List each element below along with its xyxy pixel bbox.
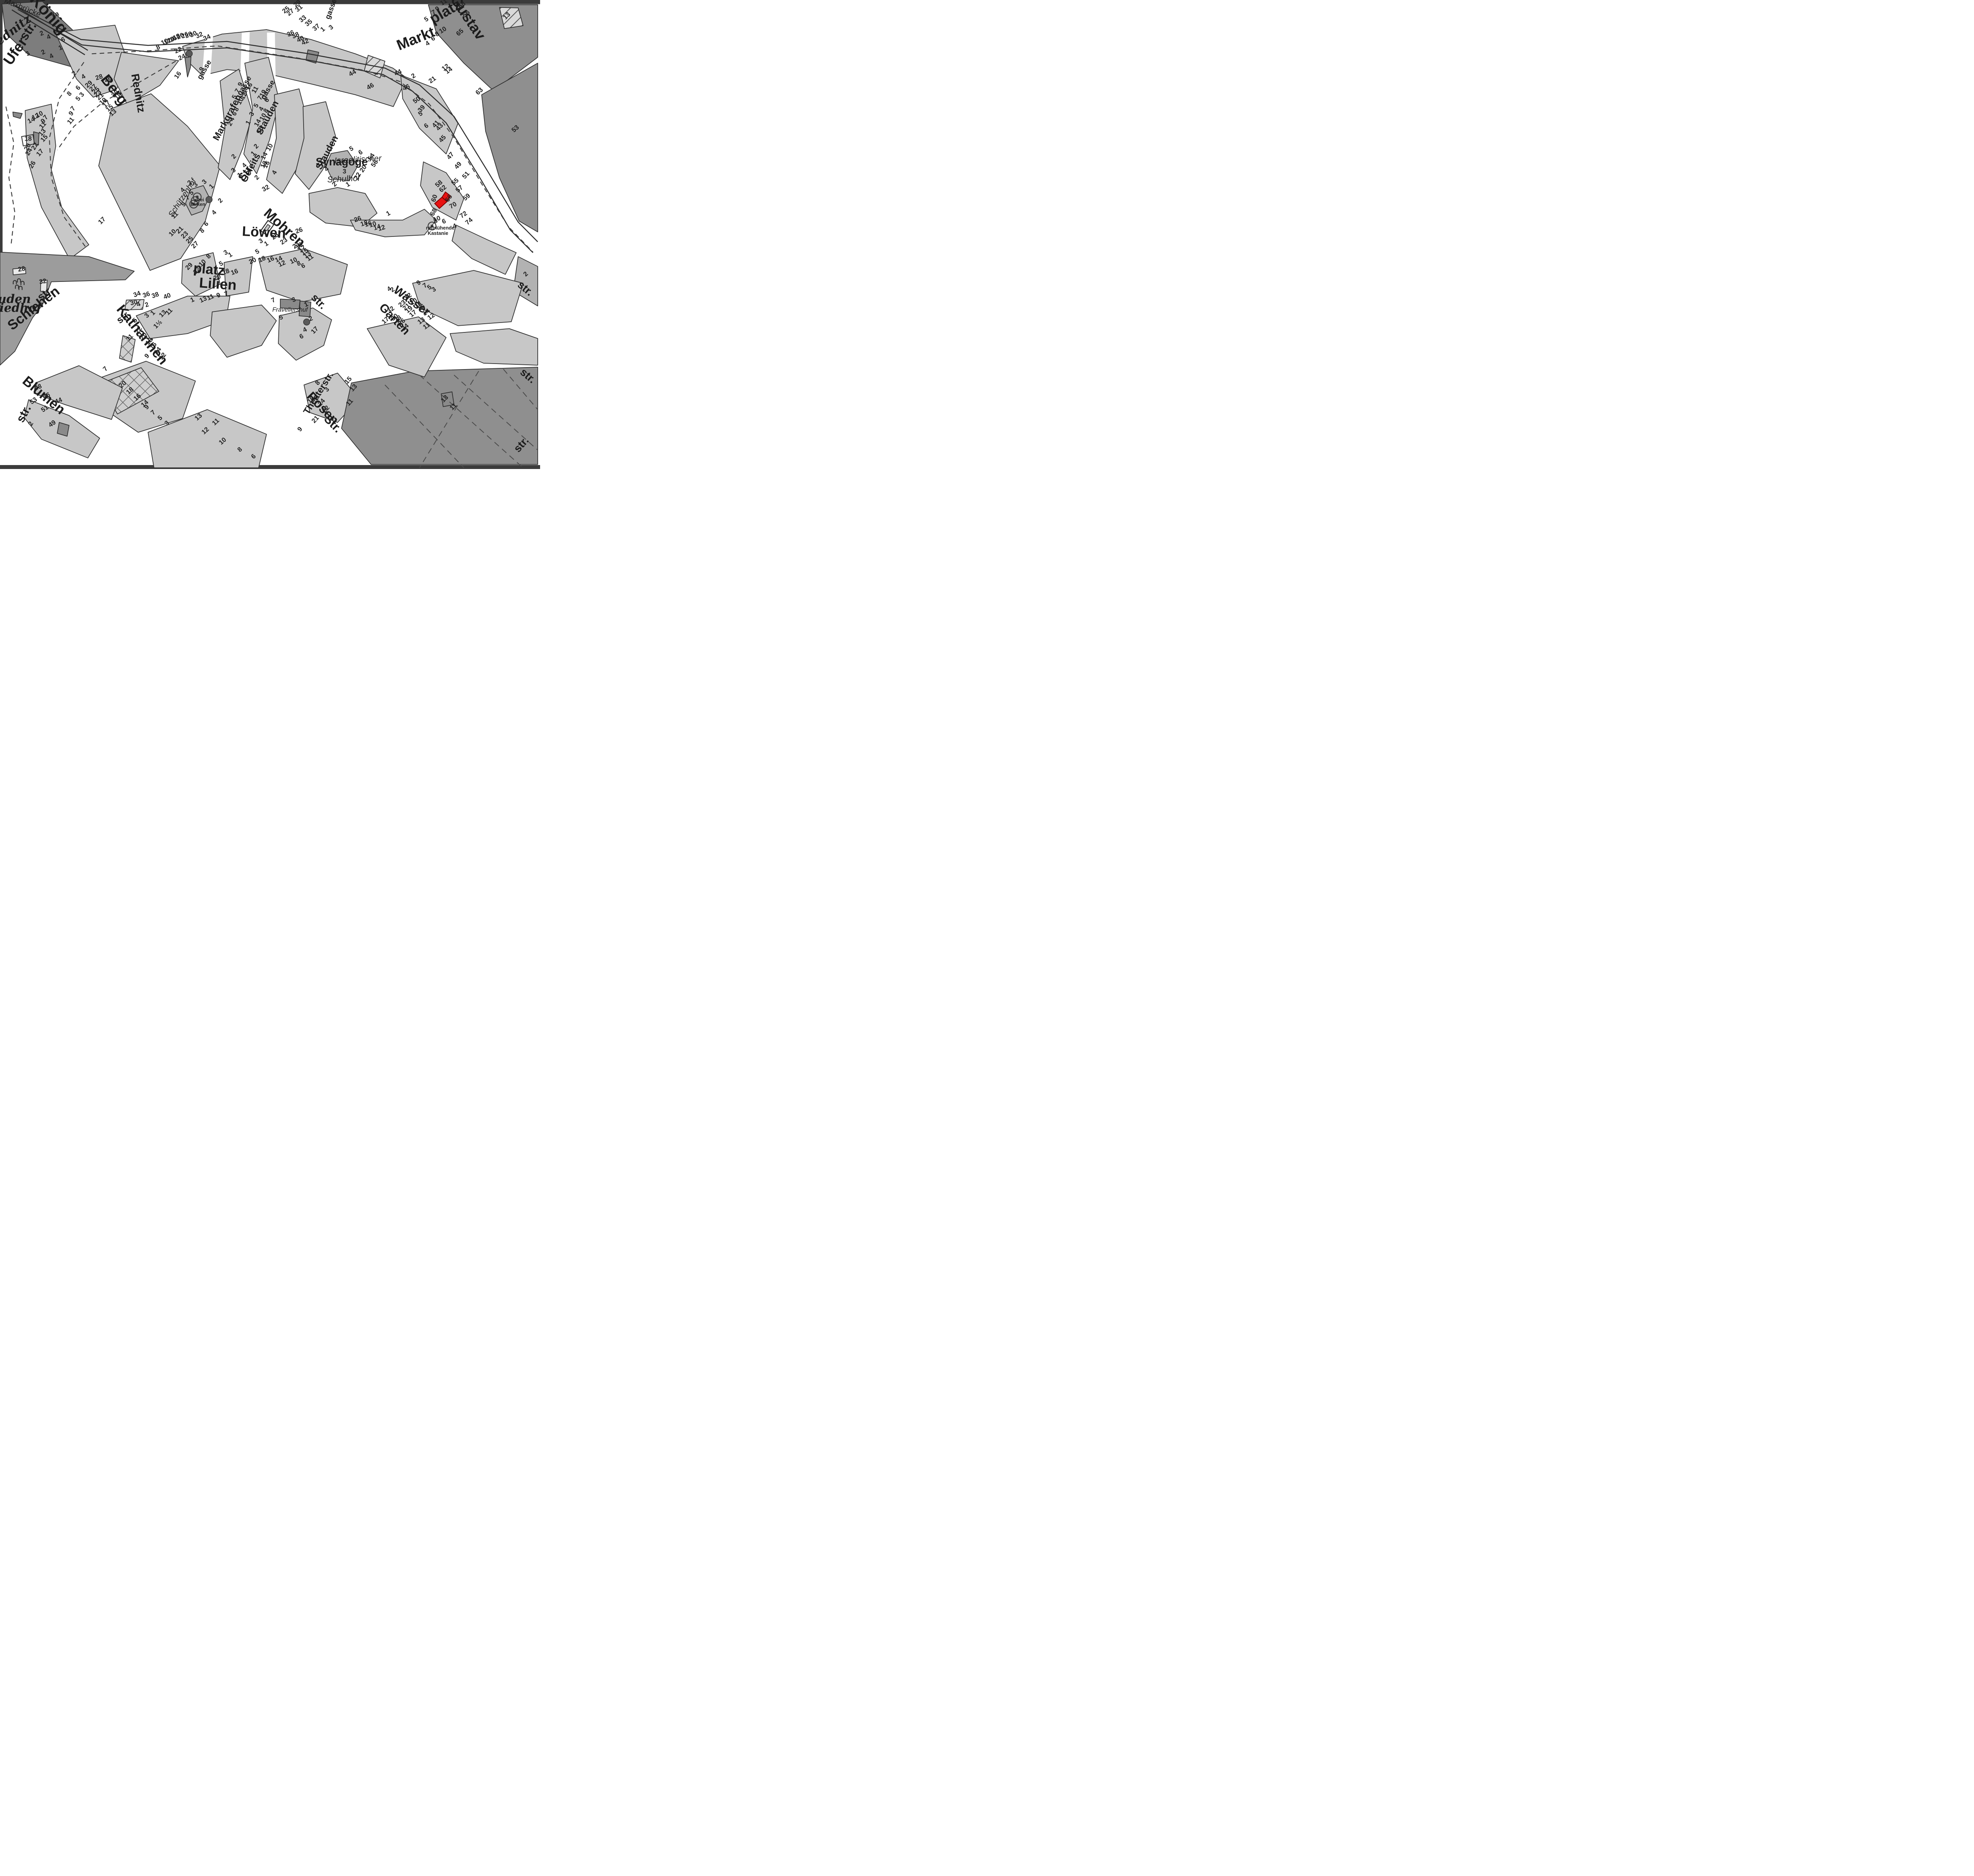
tree-icon xyxy=(304,319,310,325)
city-map: MaxbrückeRednitzKönigstr.UferRednitzBerg… xyxy=(0,0,540,469)
house-number: 2 xyxy=(144,301,150,309)
house-number: 49 xyxy=(453,160,463,171)
street-label: Fraveliershuf xyxy=(272,307,308,313)
house-number: 74 xyxy=(464,216,474,226)
house-number: 2 xyxy=(217,197,224,204)
map-page: MaxbrückeRednitzKönigstr.UferRednitzBerg… xyxy=(0,0,540,469)
scan-border xyxy=(0,465,540,469)
house-number: 9 xyxy=(296,426,304,433)
house-number: 7 xyxy=(101,365,109,373)
house-number: 7 xyxy=(270,296,276,304)
house-number: 1 xyxy=(263,240,270,248)
house-number: 51 xyxy=(461,170,471,180)
house-number: 6 xyxy=(74,84,82,92)
city-block xyxy=(99,94,220,271)
house-number: 16 xyxy=(173,70,183,80)
house-number: 21 xyxy=(427,75,437,85)
tree-icon xyxy=(186,51,192,57)
city-block xyxy=(185,57,191,77)
street-label: Löwen xyxy=(242,223,286,241)
house-number: 1 xyxy=(385,210,392,218)
city-block xyxy=(210,305,277,358)
house-number: 8 xyxy=(66,90,73,98)
house-number: 28 xyxy=(17,265,26,273)
house-number: 17 xyxy=(97,216,107,226)
city-block xyxy=(452,225,516,274)
city-block xyxy=(13,112,23,118)
house-number: 72 xyxy=(458,210,468,219)
house-number: 5 xyxy=(254,248,261,256)
house-number: 2 xyxy=(253,174,261,181)
city-block xyxy=(482,63,538,232)
city-block xyxy=(450,329,538,366)
house-number: 38 xyxy=(151,291,160,300)
street-label: friedhof xyxy=(0,301,43,315)
house-number: 40 xyxy=(163,292,172,301)
boundary-chain-line xyxy=(6,107,15,247)
house-number: 34 xyxy=(132,289,142,298)
street-label: rotblühende xyxy=(426,225,454,231)
house-number: 4 xyxy=(210,208,218,216)
city-block xyxy=(57,422,69,436)
street-label: Birken xyxy=(191,201,205,207)
house-number: 32 xyxy=(39,278,47,286)
house-number: 18 xyxy=(24,135,32,142)
tree-icon xyxy=(206,197,212,203)
house-number: 36 xyxy=(142,290,151,299)
house-number: 3 xyxy=(327,24,335,32)
house-number: 11 xyxy=(66,116,76,126)
house-number: 3 xyxy=(343,168,346,175)
house-number: 5 xyxy=(348,145,355,153)
street-label: Kastanie xyxy=(428,231,448,236)
city-block xyxy=(342,367,538,465)
house-number: 32 xyxy=(261,184,271,193)
house-number: 6 xyxy=(441,218,447,225)
city-block xyxy=(25,104,89,259)
